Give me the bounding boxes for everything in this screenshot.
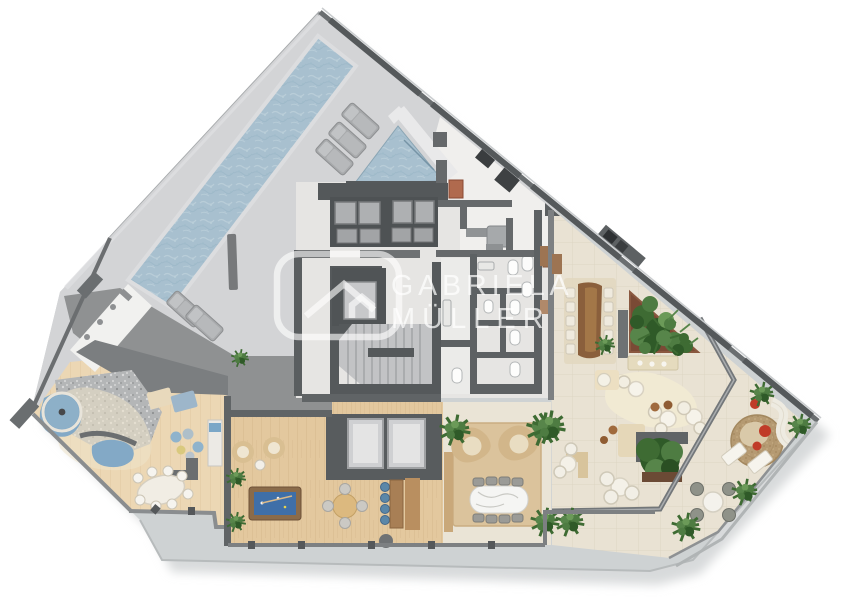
svg-text:MÜLLER: MÜLLER (391, 303, 551, 335)
svg-text:GABRIELA: GABRIELA (391, 270, 574, 302)
